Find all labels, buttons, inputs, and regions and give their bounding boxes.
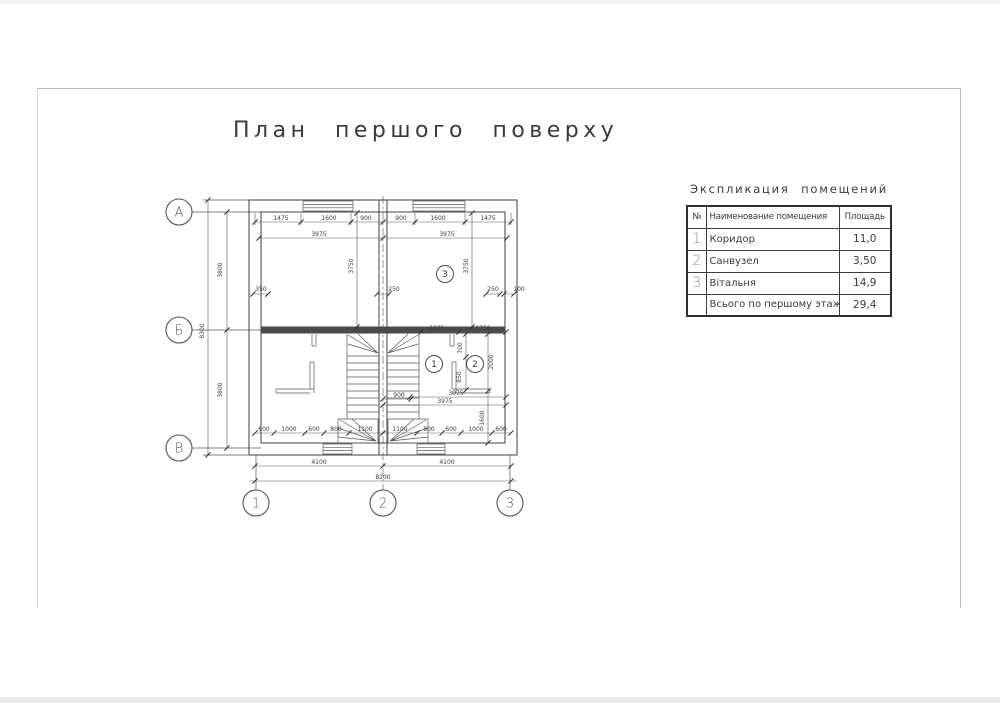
dim-label: 3750 [463,258,470,273]
dim-label: 1600 [430,215,445,222]
plan-labels: АБВ1231231475160090090016001475397539753… [166,199,525,516]
scanned-drawing-page: План першого поверху [0,0,1000,703]
room-name: Санвузел [706,250,839,272]
dim-label: 600 [495,426,507,433]
room-number: 3 [687,272,706,294]
dimension-lines [205,197,517,483]
total-num [687,294,706,316]
dim-label: 900 [395,215,407,222]
explication-title: Экспликация помещений [686,182,892,196]
row-axis-label: Б [175,324,184,339]
dim-label: 900 [393,392,405,399]
table-row: 1 Коридор 11,0 [687,228,891,250]
col-axis-label: 3 [506,497,514,512]
dim-label: 4100 [311,459,326,466]
col-header-num: № [687,206,706,228]
dim-label: 250 [487,286,499,293]
load-bearing-wall [261,327,505,334]
room-number: 2 [687,250,706,272]
room-number-label: 3 [442,270,448,280]
total-area: 29,4 [839,294,891,316]
dim-label: 800 [423,426,435,433]
room-number-label: 2 [472,360,478,370]
dim-label: 1475 [273,215,288,222]
dim-label: 800 [330,426,342,433]
dim-label: 2000 [488,354,495,369]
dim-label: 8300 [199,323,206,338]
dim-label: 900 [360,215,372,222]
dim-label: 3750 [348,258,355,273]
room-name: Вітальня [706,272,839,294]
dim-label: 1600 [321,215,336,222]
dim-label: 1600 [479,410,486,425]
room-area: 3,50 [839,250,891,272]
dim-label: 3975 [311,231,326,238]
room-number: 1 [687,228,706,250]
floor-plan-drawing: АБВ1231231475160090090016001475397539753… [0,0,1000,703]
dim-label: 250 [388,286,400,293]
dim-label: 350 [255,286,267,293]
dim-label: 850 [456,371,463,383]
dim-label: 100 [513,286,525,293]
col-axis-label: 2 [379,497,387,512]
dim-label: 3800 [217,262,224,277]
dim-label: 3800 [217,382,224,397]
dim-label: 1225 [429,325,444,332]
dim-label: 1750 [475,325,490,332]
total-label: Всього по першому этажу [706,294,839,316]
table-total-row: Всього по першому этажу 29,4 [687,294,891,316]
row-axis-label: В [175,442,184,457]
table-row: 2 Санвузел 3,50 [687,250,891,272]
room-number-label: 1 [431,360,437,370]
dim-label: 3975 [439,231,454,238]
explication-table: № Наименование помещения Площадь 1 Корид… [686,205,892,317]
dim-label: 1100 [357,426,372,433]
dim-label: 600 [308,426,320,433]
col-header-name: Наименование помещения [706,206,839,228]
dim-label: 600 [258,426,270,433]
col-header-area: Площадь [839,206,891,228]
row-axis-label: А [175,206,184,221]
table-header-row: № Наименование помещения Площадь [687,206,891,228]
dim-label: 8200 [375,474,390,481]
explication-block: Экспликация помещений № Наименование пом… [686,182,892,317]
room-area: 14,9 [839,272,891,294]
dim-label: 1000 [468,426,483,433]
dim-label: 1000 [281,426,296,433]
dim-label: 1475 [480,215,495,222]
dim-label: 3975 [437,398,452,405]
room-area: 11,0 [839,228,891,250]
room-name: Коридор [706,228,839,250]
dim-label: 1100 [392,426,407,433]
dim-label: 4100 [439,459,454,466]
table-row: 3 Вітальня 14,9 [687,272,891,294]
dim-label: 700 [457,342,464,354]
col-axis-label: 1 [252,497,260,512]
dim-label: 600 [445,426,457,433]
dim-label: 3075 [448,390,463,397]
